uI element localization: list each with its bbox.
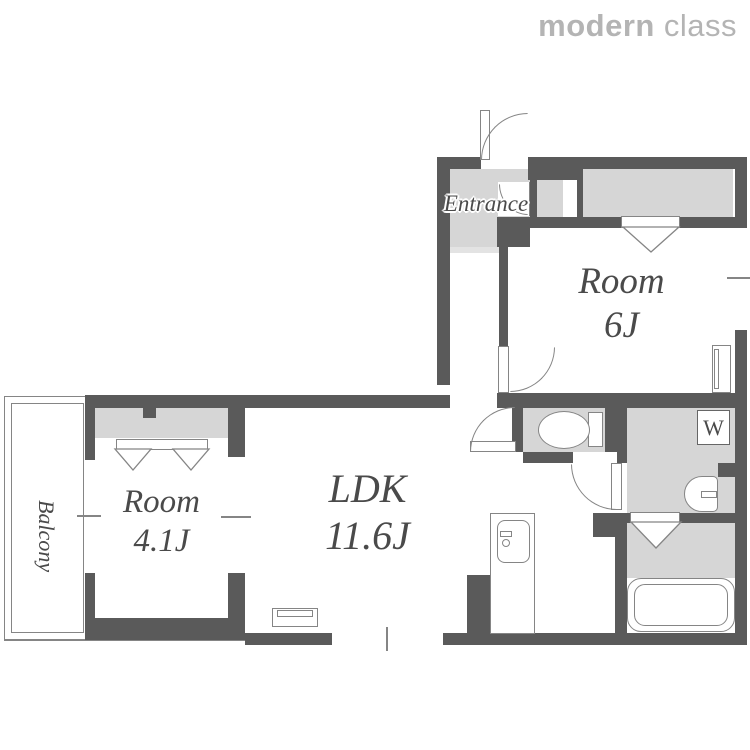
entrance-floor-lower <box>450 217 497 248</box>
room6-door-leaf <box>498 346 509 393</box>
ldk-label: LDK 11.6J <box>270 465 465 559</box>
wall <box>85 618 245 640</box>
brand-logo-light: class <box>664 8 737 43</box>
sink-handle-icon <box>701 491 717 498</box>
closet41-folding-door-icon <box>113 448 153 472</box>
toilet-tank-icon <box>588 412 603 447</box>
floor-plan: modernclass <box>0 0 750 750</box>
wall <box>528 169 583 180</box>
wall-kitchen-stub <box>467 575 490 637</box>
ldk-size: 11.6J <box>270 512 465 559</box>
ldk-door-arc <box>470 407 515 452</box>
wall <box>497 393 747 408</box>
wall <box>593 513 627 537</box>
bathtub-inner-icon <box>634 584 728 626</box>
brand-logo: modernclass <box>538 8 737 44</box>
kitchen-faucet-knob-icon <box>502 539 510 547</box>
closet-room41 <box>95 407 228 438</box>
room6-name: Room <box>508 260 735 304</box>
shoe-cabinet <box>537 180 563 217</box>
wall <box>245 633 747 645</box>
wall <box>718 463 735 477</box>
room6-label: Room 6J <box>508 260 735 347</box>
closet-divider-notch <box>143 404 156 418</box>
room6-shelf-inner <box>714 349 719 389</box>
room41-ldk-sliding-door <box>228 457 245 573</box>
balcony-label: Balcony <box>33 466 59 606</box>
closet41-folding-door-icon <box>171 448 211 472</box>
bath-folding-door-icon <box>629 521 683 550</box>
wall <box>85 395 450 408</box>
room41-name: Room <box>95 483 228 522</box>
window-tick <box>386 627 388 651</box>
room6-door-arc <box>510 347 555 392</box>
toilet-door-opening <box>573 452 617 463</box>
room41-label: Room 4.1J <box>95 483 228 561</box>
room41-size: 4.1J <box>95 522 228 561</box>
toilet-bowl-icon <box>538 411 590 449</box>
room6-window <box>735 228 747 330</box>
toilet-door-arc <box>571 464 617 510</box>
closet-room6 <box>583 167 733 217</box>
ldk-counter-inner <box>277 610 313 617</box>
kitchen-faucet-icon <box>500 531 512 537</box>
closet6-folding-door-icon <box>620 226 682 254</box>
wall <box>499 228 508 346</box>
washer-label: W <box>698 411 729 444</box>
brand-logo-bold: modern <box>538 8 655 43</box>
wall <box>577 180 583 217</box>
washer-space: W <box>697 410 730 445</box>
ldk-name: LDK <box>270 465 465 512</box>
entrance-label: Entrance <box>436 190 536 217</box>
room6-size: 6J <box>508 304 735 348</box>
